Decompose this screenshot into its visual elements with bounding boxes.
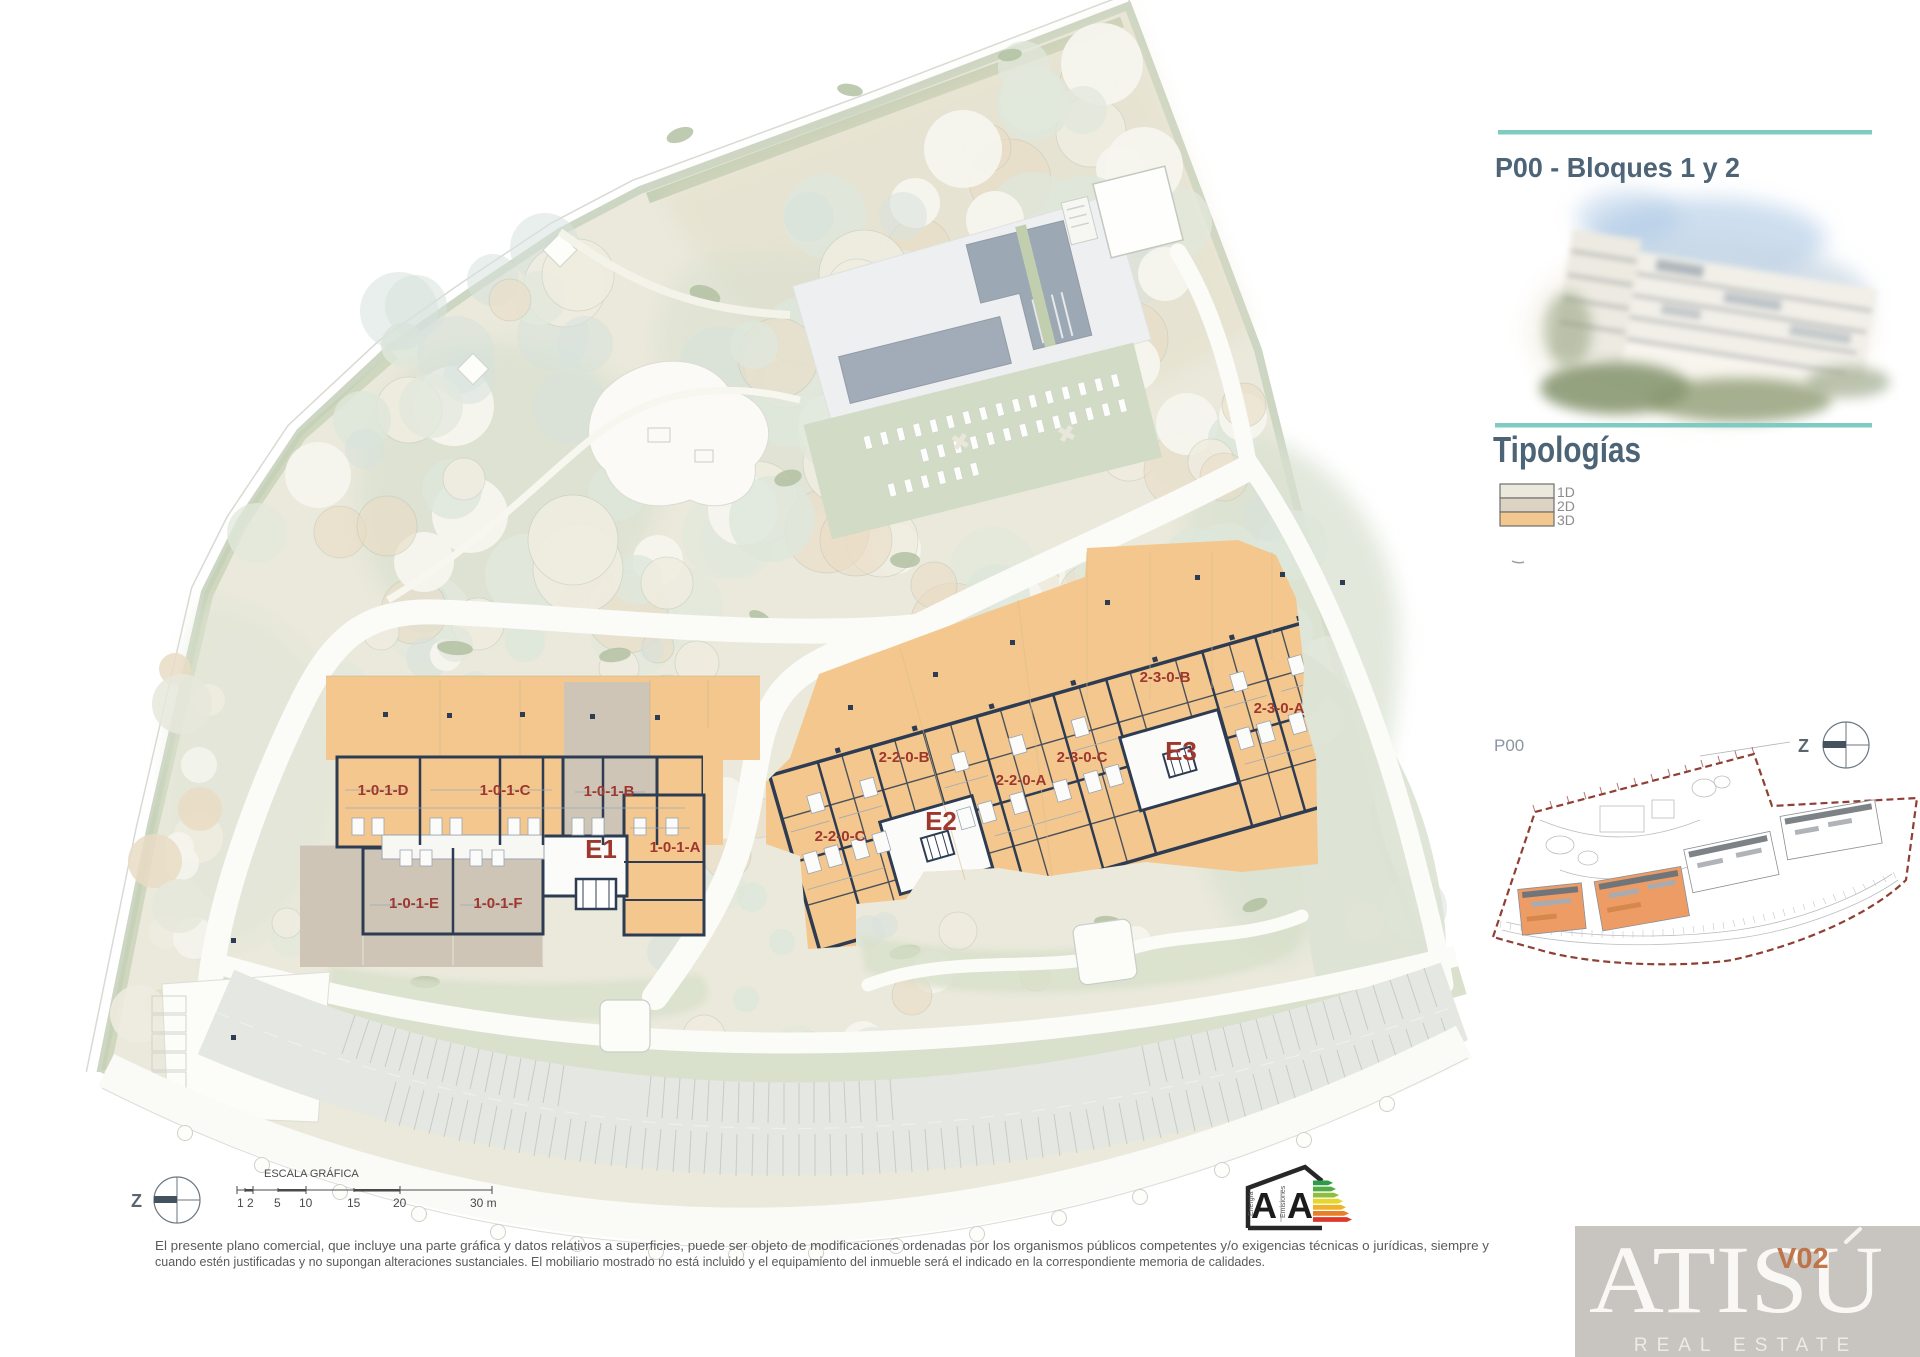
- svg-text:2-2-0-A: 2-2-0-A: [996, 772, 1047, 789]
- svg-text:15: 15: [347, 1196, 361, 1210]
- svg-text:30 m: 30 m: [470, 1196, 497, 1210]
- svg-text:20: 20: [393, 1196, 407, 1210]
- svg-text:Z: Z: [131, 1191, 142, 1211]
- svg-text:El presente plano comercial, q: El presente plano comercial, que incluye…: [155, 1238, 1489, 1253]
- svg-text:P00: P00: [1494, 736, 1524, 755]
- svg-text:E3: E3: [1165, 736, 1197, 766]
- svg-text:E2: E2: [925, 806, 957, 836]
- svg-text:2-2-0-B: 2-2-0-B: [879, 749, 930, 766]
- svg-text:Z: Z: [1798, 736, 1809, 756]
- svg-text:3D: 3D: [1557, 512, 1575, 528]
- svg-text:10: 10: [299, 1196, 313, 1210]
- svg-text:V02: V02: [1777, 1243, 1829, 1275]
- svg-text:E1: E1: [585, 834, 617, 864]
- svg-text:P00 - Bloques 1 y 2: P00 - Bloques 1 y 2: [1495, 152, 1740, 183]
- svg-text:ATISU: ATISU: [1589, 1226, 1883, 1333]
- svg-text:cuando estén justificadas y no: cuando estén justificadas y no supongan …: [155, 1254, 1265, 1269]
- svg-text:2-3-0-A: 2-3-0-A: [1254, 700, 1305, 717]
- svg-text:A: A: [1287, 1185, 1313, 1226]
- svg-text:Energía: Energía: [1248, 1191, 1255, 1216]
- svg-text:1 2: 1 2: [237, 1196, 254, 1210]
- svg-text:1-0-1-A: 1-0-1-A: [650, 839, 701, 856]
- svg-text:ESCALA GRÁFICA: ESCALA GRÁFICA: [264, 1167, 359, 1180]
- svg-text:2-3-0-B: 2-3-0-B: [1140, 669, 1191, 686]
- svg-text:1-0-1-E: 1-0-1-E: [389, 895, 439, 912]
- svg-text:1-0-1-F: 1-0-1-F: [473, 895, 522, 912]
- svg-text:Tipologías: Tipologías: [1493, 429, 1641, 470]
- svg-text:1-0-1-B: 1-0-1-B: [584, 783, 635, 800]
- svg-text:2-2-0-C: 2-2-0-C: [815, 828, 866, 845]
- svg-text:1-0-1-D: 1-0-1-D: [358, 782, 409, 799]
- svg-text:REAL ESTATE: REAL ESTATE: [1634, 1335, 1858, 1356]
- svg-text:2-3-0-C: 2-3-0-C: [1057, 749, 1108, 766]
- svg-text:1-0-1-C: 1-0-1-C: [480, 782, 531, 799]
- svg-text:5: 5: [274, 1196, 281, 1210]
